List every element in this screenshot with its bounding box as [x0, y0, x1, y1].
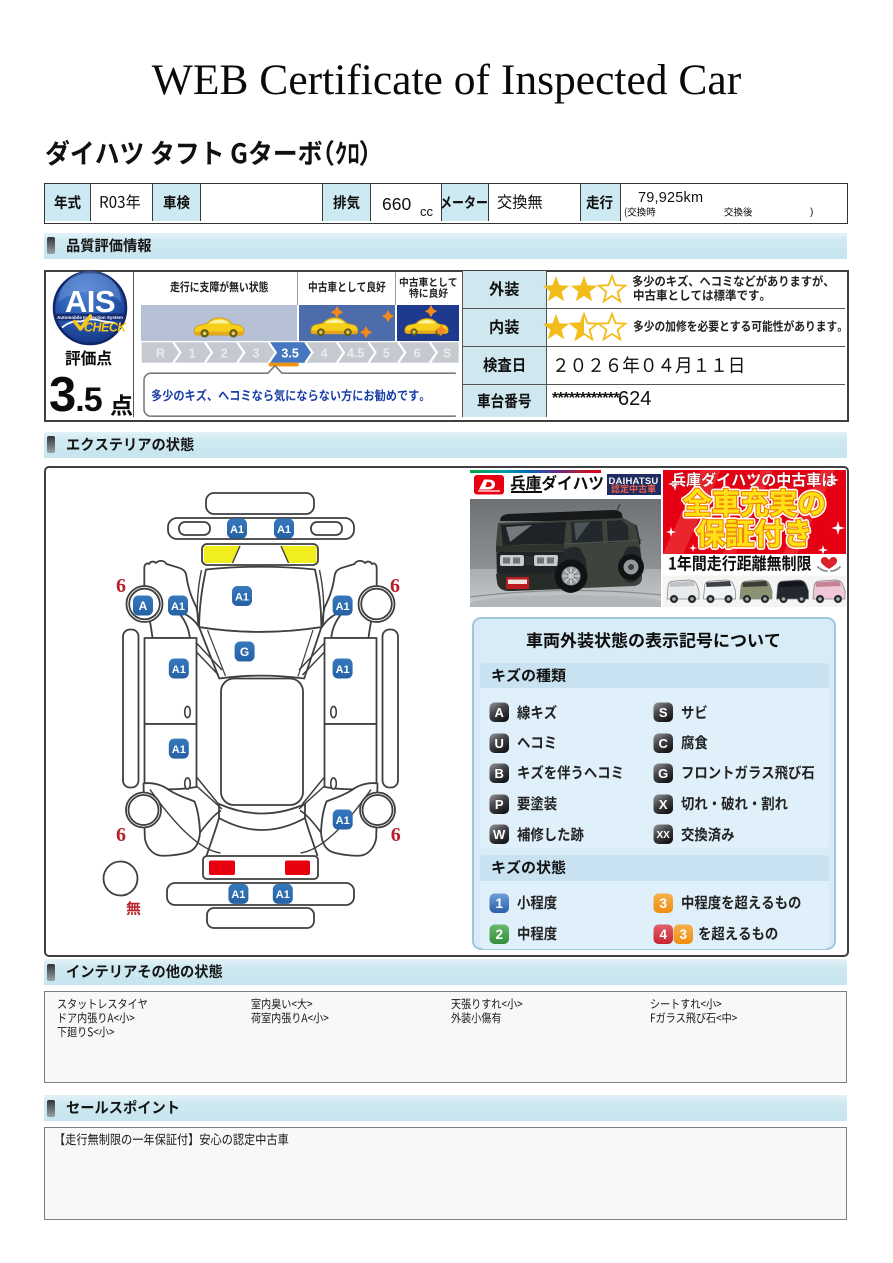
svg-text:6: 6 — [116, 824, 126, 846]
svg-text:XX: XX — [656, 830, 670, 841]
svg-text:A1: A1 — [235, 591, 249, 603]
svg-text:2: 2 — [221, 347, 228, 361]
svg-text:5: 5 — [383, 347, 390, 361]
svg-text:6: 6 — [391, 824, 401, 846]
svg-text:3: 3 — [659, 896, 667, 911]
svg-text:6: 6 — [116, 575, 126, 597]
svg-text:6: 6 — [414, 347, 421, 361]
svg-text:4: 4 — [321, 347, 328, 361]
svg-text:A1: A1 — [336, 815, 350, 827]
svg-text:A: A — [139, 599, 148, 613]
svg-text:P: P — [494, 797, 503, 812]
svg-text:A1: A1 — [172, 744, 186, 756]
svg-text:C: C — [658, 736, 668, 751]
svg-text:G: G — [240, 645, 249, 659]
svg-text:A1: A1 — [276, 889, 290, 901]
svg-text:A1: A1 — [172, 664, 186, 676]
svg-text:G: G — [658, 766, 668, 781]
svg-text:A1: A1 — [336, 601, 350, 613]
svg-text:CHECK: CHECK — [84, 321, 127, 335]
svg-text:4.5: 4.5 — [347, 347, 364, 361]
svg-text:S: S — [443, 347, 451, 361]
svg-text:W: W — [493, 827, 506, 842]
svg-text:3: 3 — [680, 927, 688, 942]
svg-text:3.5: 3.5 — [281, 347, 298, 361]
svg-text:R: R — [156, 347, 165, 361]
svg-text:U: U — [494, 736, 503, 751]
svg-text:A: A — [494, 705, 504, 720]
svg-text:S: S — [658, 705, 667, 720]
svg-text:A1: A1 — [171, 601, 185, 613]
svg-text:A1: A1 — [230, 524, 244, 536]
svg-text:B: B — [494, 766, 503, 781]
svg-text:3: 3 — [253, 347, 260, 361]
svg-text:1: 1 — [495, 896, 503, 911]
svg-text:A1: A1 — [277, 524, 291, 536]
svg-text:6: 6 — [390, 575, 400, 597]
svg-text:A1: A1 — [336, 664, 350, 676]
svg-text:1: 1 — [189, 347, 196, 361]
svg-text:X: X — [658, 797, 667, 812]
svg-text:2: 2 — [495, 927, 503, 942]
svg-text:4: 4 — [659, 927, 667, 942]
svg-text:A1: A1 — [231, 889, 245, 901]
